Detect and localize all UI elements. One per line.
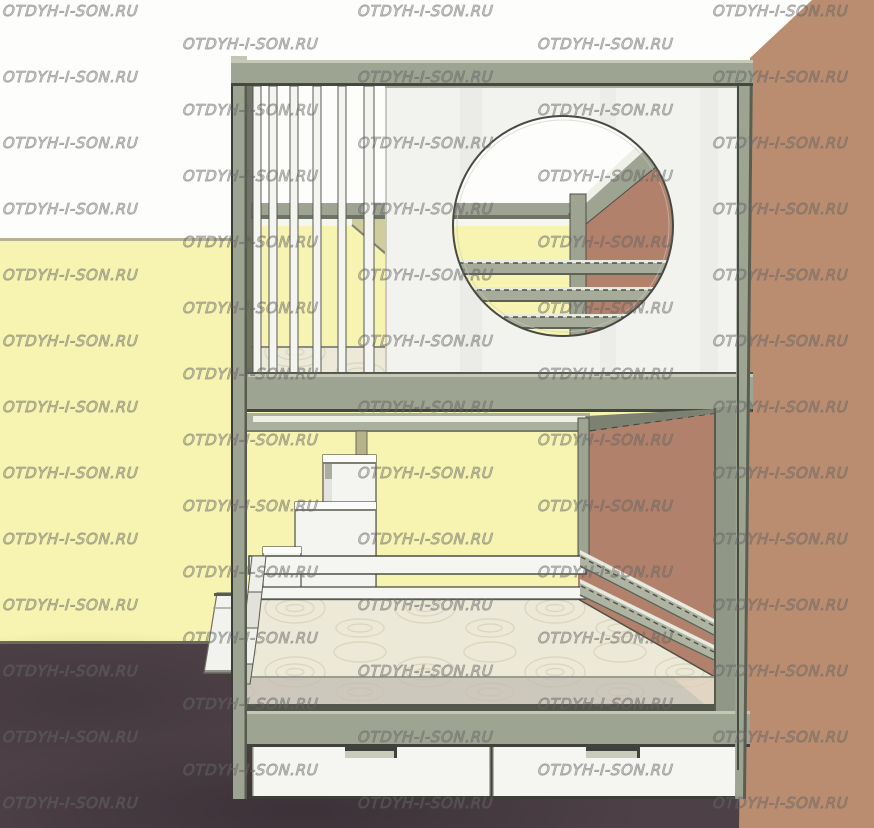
slat (364, 86, 374, 374)
left-post (231, 56, 247, 799)
bottom-fascia (231, 711, 750, 747)
bed-3d-render (0, 0, 874, 828)
product-render: OTDYH-I-SON.RUOTDYH-I-SON.RUOTDYH-I-SON.… (0, 0, 874, 828)
drawer-handle-right (586, 747, 640, 758)
storage-drawers (249, 747, 741, 799)
right-post-inner-face (714, 405, 737, 712)
guard-rail-upper (249, 556, 586, 574)
slat (338, 86, 346, 374)
mid-beam (231, 372, 753, 412)
drawer-handle-left (345, 747, 397, 758)
right-wall (739, 0, 874, 828)
bunk-bed (204, 56, 753, 799)
top-beam (231, 60, 753, 86)
post-shadow (247, 86, 253, 376)
guard-rail-lower (249, 587, 586, 599)
rear-post-lower (578, 418, 589, 568)
slat (269, 86, 277, 374)
slat (253, 86, 261, 374)
slat (290, 86, 298, 374)
step-middle (295, 502, 376, 599)
support-pole (356, 431, 367, 458)
slat (313, 86, 321, 374)
